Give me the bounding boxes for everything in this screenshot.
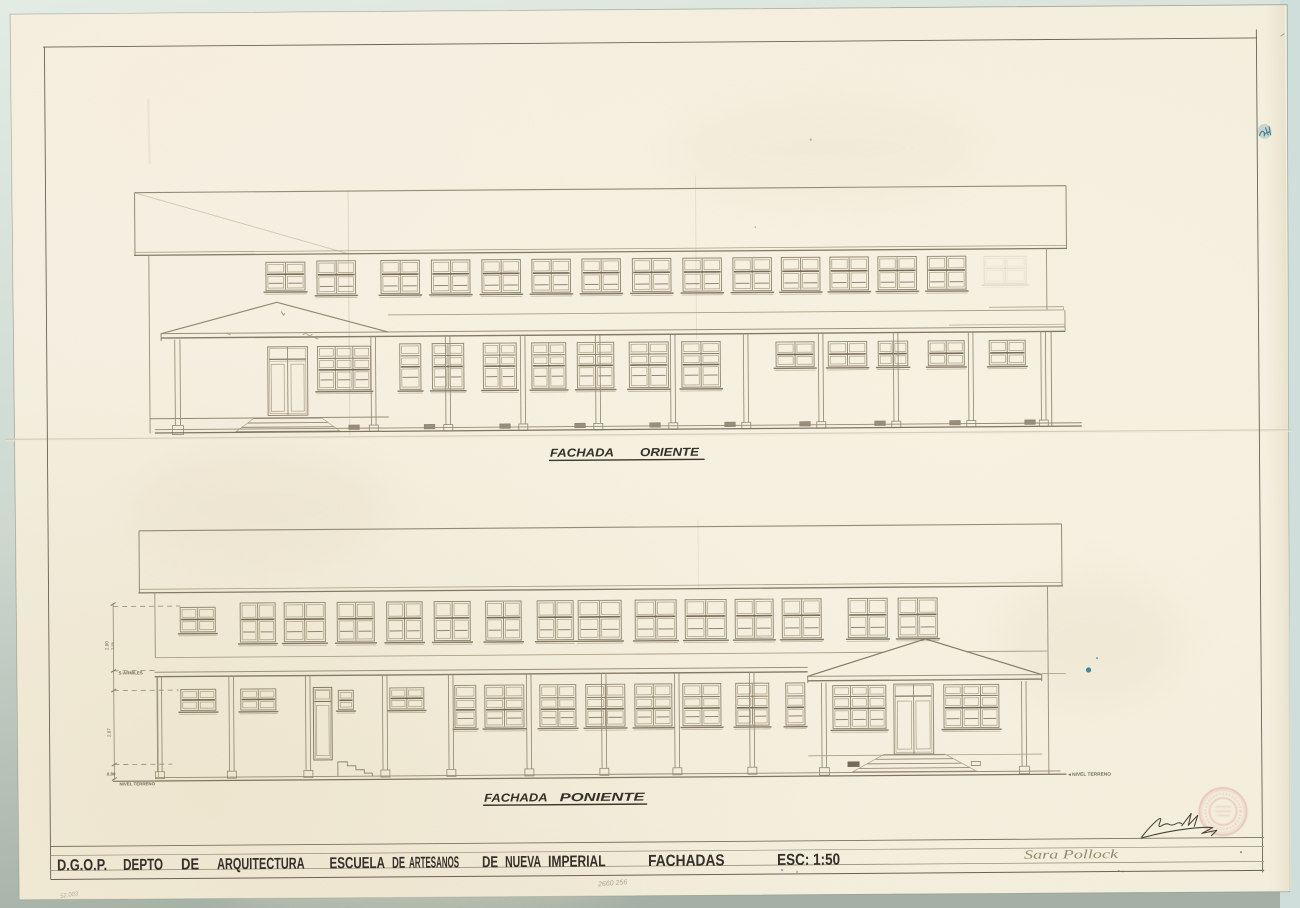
svg-text:ARTESANOS: ARTESANOS [409, 854, 459, 871]
svg-text:S·ARMILES: S·ARMILES [119, 670, 143, 675]
svg-text:2.87: 2.87 [107, 728, 112, 737]
svg-text:FACHADA: FACHADA [550, 447, 614, 459]
svg-text:ESC: 1:50: ESC: 1:50 [777, 852, 840, 869]
svg-text:ARQUITECTURA: ARQUITECTURA [217, 856, 305, 874]
svg-text:ESCUELA: ESCUELA [329, 855, 385, 872]
svg-text:ORIENTE: ORIENTE [640, 447, 699, 459]
svg-text:Sara Pollock: Sara Pollock [1024, 847, 1119, 862]
svg-text:DE: DE [482, 854, 498, 871]
svg-text:PONIENTE: PONIENTE [560, 792, 646, 805]
svg-text:FACHADA: FACHADA [484, 792, 548, 804]
svg-text:NUEVA: NUEVA [505, 854, 541, 871]
svg-text:IMPERIAL: IMPERIAL [548, 853, 606, 870]
svg-text:2.80: 2.80 [104, 641, 109, 650]
svg-text:◂ NIVEL TERRENO: ◂ NIVEL TERRENO [1067, 772, 1111, 778]
svg-text:D.G.O.P.: D.G.O.P. [57, 857, 107, 874]
svg-text:2.86: 2.86 [110, 641, 115, 650]
svg-text:FACHADAS: FACHADAS [648, 852, 725, 870]
svg-text:NIVEL TERRENO: NIVEL TERRENO [119, 781, 155, 786]
svg-text:0.80: 0.80 [107, 772, 116, 777]
svg-text:DEPTO: DEPTO [123, 857, 163, 874]
svg-text:DE: DE [181, 856, 199, 873]
svg-text:DE: DE [392, 855, 405, 872]
